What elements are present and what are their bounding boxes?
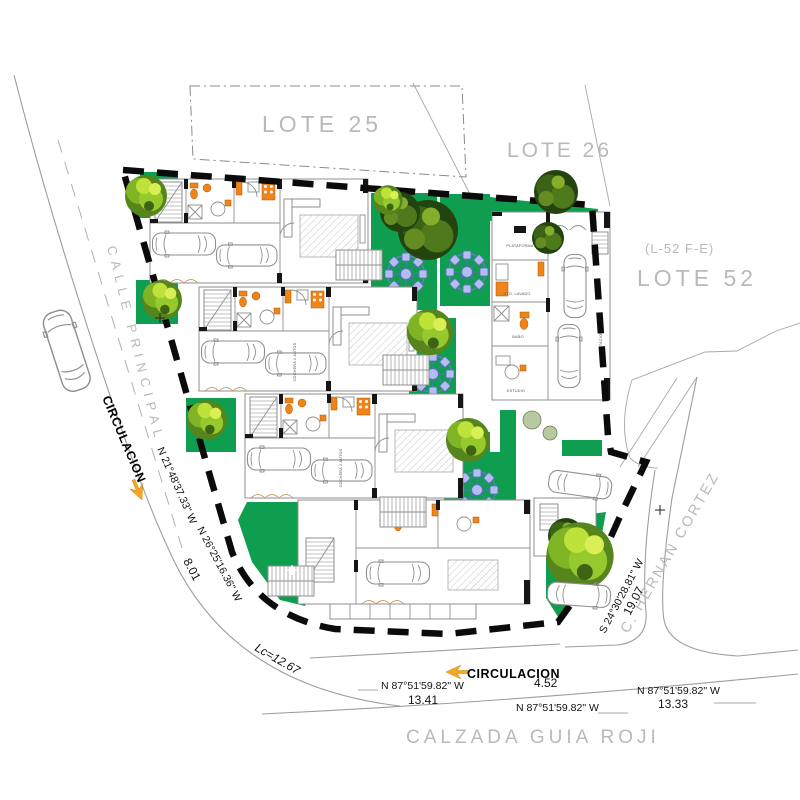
staircase-2 (383, 355, 429, 385)
bearing-left-2: N 26°25'16.36" W (194, 525, 244, 604)
bush-icon (523, 411, 541, 429)
room-label-estudio: ESTUDIO (507, 389, 525, 393)
bearing-bottom-1: N 87°51'59.82" W (381, 680, 464, 692)
car-hernan-cortez-1 (547, 467, 613, 502)
circulation-arrow-bottom (446, 665, 468, 679)
lot-label-52-code: (L-52 F-E) (645, 241, 714, 256)
room-label-plataforma: PLATAFORMA (506, 244, 533, 248)
lot-label-26: LOTE 26 (507, 139, 612, 162)
site-plan-canvas: PLATAFORMA CTO. LAVADO BAÑO ESTUDIO ESTA… (0, 0, 800, 800)
room-label-cochera-1: COCHERA 2 AUTOS (293, 342, 297, 381)
bearing-bottom-3: N 87°51'59.82" W (637, 685, 720, 697)
housing-unit-1 (150, 179, 368, 283)
distance-bottom-1: 13.41 (408, 693, 438, 707)
street-label-calzada: CALZADA GUIA ROJI (406, 727, 660, 748)
circulation-label-left: CIRCULACION (99, 394, 148, 485)
room-label-cochera-2: COCHERA 2 AUTOS (339, 448, 343, 487)
room-label-bano: BAÑO (512, 334, 524, 339)
staircase-1 (336, 250, 382, 280)
staircase-3 (380, 497, 426, 527)
lot-label-25: LOTE 25 (262, 111, 382, 137)
distance-bottom-3: 13.33 (658, 697, 688, 711)
bush-icon (543, 426, 557, 440)
room-label-cto-lavado: CTO. LAVADO (503, 292, 530, 296)
bearing-bottom-2: N 87°51'59.82" W (516, 702, 599, 714)
distance-bottom-2: 4.52 (534, 676, 558, 690)
lot-label-52: LOTE 52 (637, 265, 757, 291)
housing-unit-3 (245, 394, 463, 498)
bearing-left-1: N 21°48'37.33" W (154, 445, 199, 526)
car-calle-principal (38, 307, 95, 395)
